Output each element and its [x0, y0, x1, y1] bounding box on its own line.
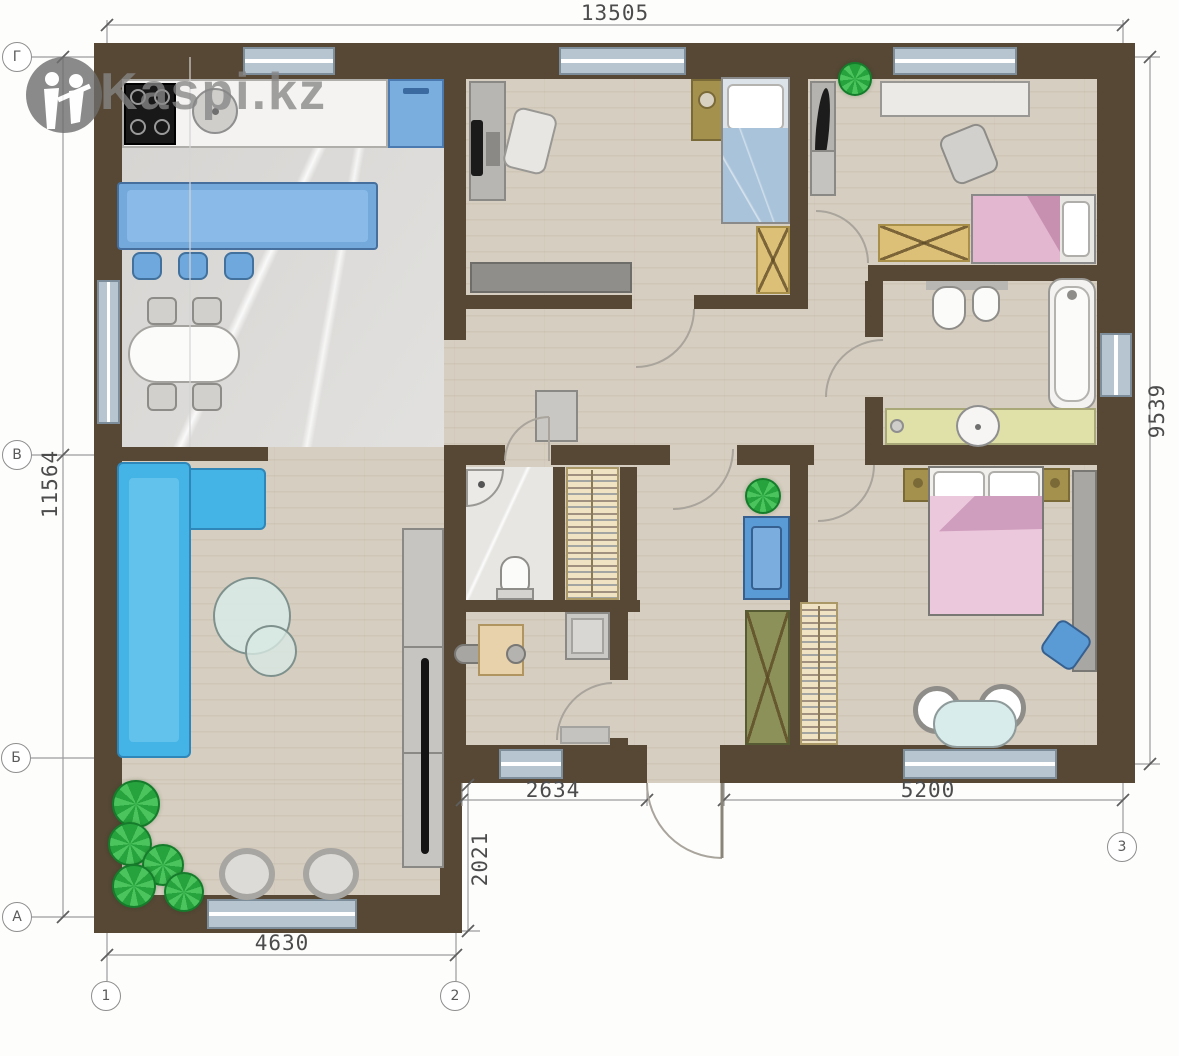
window-living-bottom [207, 899, 357, 929]
dining-chair-4 [192, 383, 222, 411]
wall-boiler-hall-a [610, 612, 628, 680]
wall-hall-a [444, 445, 505, 465]
armchair-2 [303, 848, 359, 900]
dim-top: 13505 [555, 1, 675, 25]
kaspi-logo-icon [26, 57, 102, 133]
hall-wardrobe-green [745, 610, 790, 745]
axis-col-2: 2 [440, 981, 470, 1011]
wall-kitchen-living-stub [94, 447, 268, 461]
study-bed-blanket [723, 128, 788, 222]
toilet [932, 286, 966, 330]
bedroom1-box [810, 150, 836, 196]
bedroom1-pillow [1062, 201, 1090, 257]
coffee-table-small [245, 625, 297, 677]
wall-divider-kitchen [444, 79, 466, 340]
master-table [933, 700, 1017, 748]
wall-divider-living [444, 445, 466, 745]
washing-machine-top [571, 618, 604, 654]
bar-stool-1 [132, 252, 162, 280]
study-lamp [698, 91, 716, 109]
dining-chair-1 [147, 297, 177, 325]
dim-bottom-left: 4630 [222, 931, 342, 955]
wall-boiler-hall-b [610, 738, 628, 745]
window-kitchen-left [97, 280, 120, 424]
wall-study-bottom-a [466, 295, 632, 309]
kitchen-island-top [127, 190, 368, 242]
wall-wc-closet [553, 467, 565, 600]
plant-bedroom1 [838, 62, 872, 96]
axis-row-g-label: Г [13, 49, 22, 65]
bathtub-inner [1054, 286, 1090, 402]
axis-row-a-label: А [12, 909, 22, 925]
window-bathroom-right [1100, 333, 1132, 397]
bar-stool-2 [178, 252, 208, 280]
watermark-text: Kaspi.kz [100, 62, 327, 122]
axis-row-v-label: В [12, 447, 22, 463]
bath-knob [890, 419, 904, 433]
study-monitor [471, 120, 483, 176]
dining-chair-2 [192, 297, 222, 325]
axis-row-a: А [2, 902, 32, 932]
armchair-1 [219, 848, 275, 900]
wall-wc-bottom [444, 600, 640, 612]
study-wardrobe [756, 226, 790, 294]
plant-living-5 [164, 872, 204, 912]
wall-closet-hall [620, 467, 637, 600]
bedroom1-wardrobe [878, 224, 970, 262]
dim-right: 9539 [1145, 351, 1169, 471]
wc-toilet-tank [496, 588, 534, 600]
axis-row-v: В [2, 440, 32, 470]
dining-chair-3 [147, 383, 177, 411]
hall-dresser-front [751, 526, 782, 590]
window-bedroom1-top [893, 47, 1017, 75]
bathtub-faucet [1067, 290, 1077, 300]
window-master-bottom [903, 749, 1057, 779]
axis-row-b-label: Б [11, 750, 21, 766]
wall-study-bedroom [790, 79, 808, 309]
tv-screen [421, 658, 429, 854]
hall-cabinet [535, 390, 578, 442]
study-keyboard [486, 132, 500, 166]
wall-hall-b [551, 445, 670, 465]
axis-col-2-label: 2 [451, 988, 460, 1004]
wc-sink-drain [478, 481, 485, 488]
dim-left: 11564 [38, 424, 62, 544]
study-nightstand [691, 79, 723, 141]
wall-hall-d [874, 445, 1097, 465]
axis-col-3: 3 [1107, 832, 1137, 862]
bath-sink-drain [975, 424, 981, 430]
wall-bath-left-a [865, 281, 883, 337]
bidet [972, 286, 1000, 322]
entry-mat [560, 726, 610, 744]
window-boiler-bottom [499, 749, 563, 779]
master-closet-rail [818, 606, 820, 741]
dim-bottom-mid: 2634 [493, 778, 613, 802]
window-study-top [559, 47, 686, 75]
axis-col-3-label: 3 [1118, 839, 1127, 855]
hall-closet-rail [591, 470, 593, 597]
study-bed-pillow [727, 84, 784, 130]
axis-col-1-label: 1 [102, 988, 111, 1004]
tv-unit-divider-1 [404, 646, 442, 648]
dim-offset: 2021 [468, 799, 492, 919]
axis-row-b: Б [1, 743, 31, 773]
floor-plan: Kaspi.kz 13505 11564 9539 4630 2634 5200… [0, 0, 1179, 1056]
sofa-seat [129, 478, 179, 742]
plant-living-1 [112, 780, 160, 828]
kitchen-appliance-buttons [403, 88, 429, 94]
dining-table [128, 325, 240, 383]
wall-study-bottom-b [694, 295, 790, 309]
plant-living-4 [112, 864, 156, 908]
axis-col-1: 1 [91, 981, 121, 1011]
boiler-dial [506, 644, 526, 664]
bar-stool-3 [224, 252, 254, 280]
master-nightstand-left-knob [913, 478, 923, 488]
sofa-chaise [185, 468, 266, 530]
axis-row-g: Г [2, 42, 32, 72]
wall-hall-c [737, 445, 814, 465]
wall-right [1097, 43, 1135, 783]
dim-bottom-right: 5200 [868, 778, 988, 802]
plant-hall [745, 478, 781, 514]
master-nightstand-right-knob [1050, 478, 1060, 488]
bedroom1-dresser [880, 81, 1030, 117]
study-shelf [470, 262, 632, 293]
